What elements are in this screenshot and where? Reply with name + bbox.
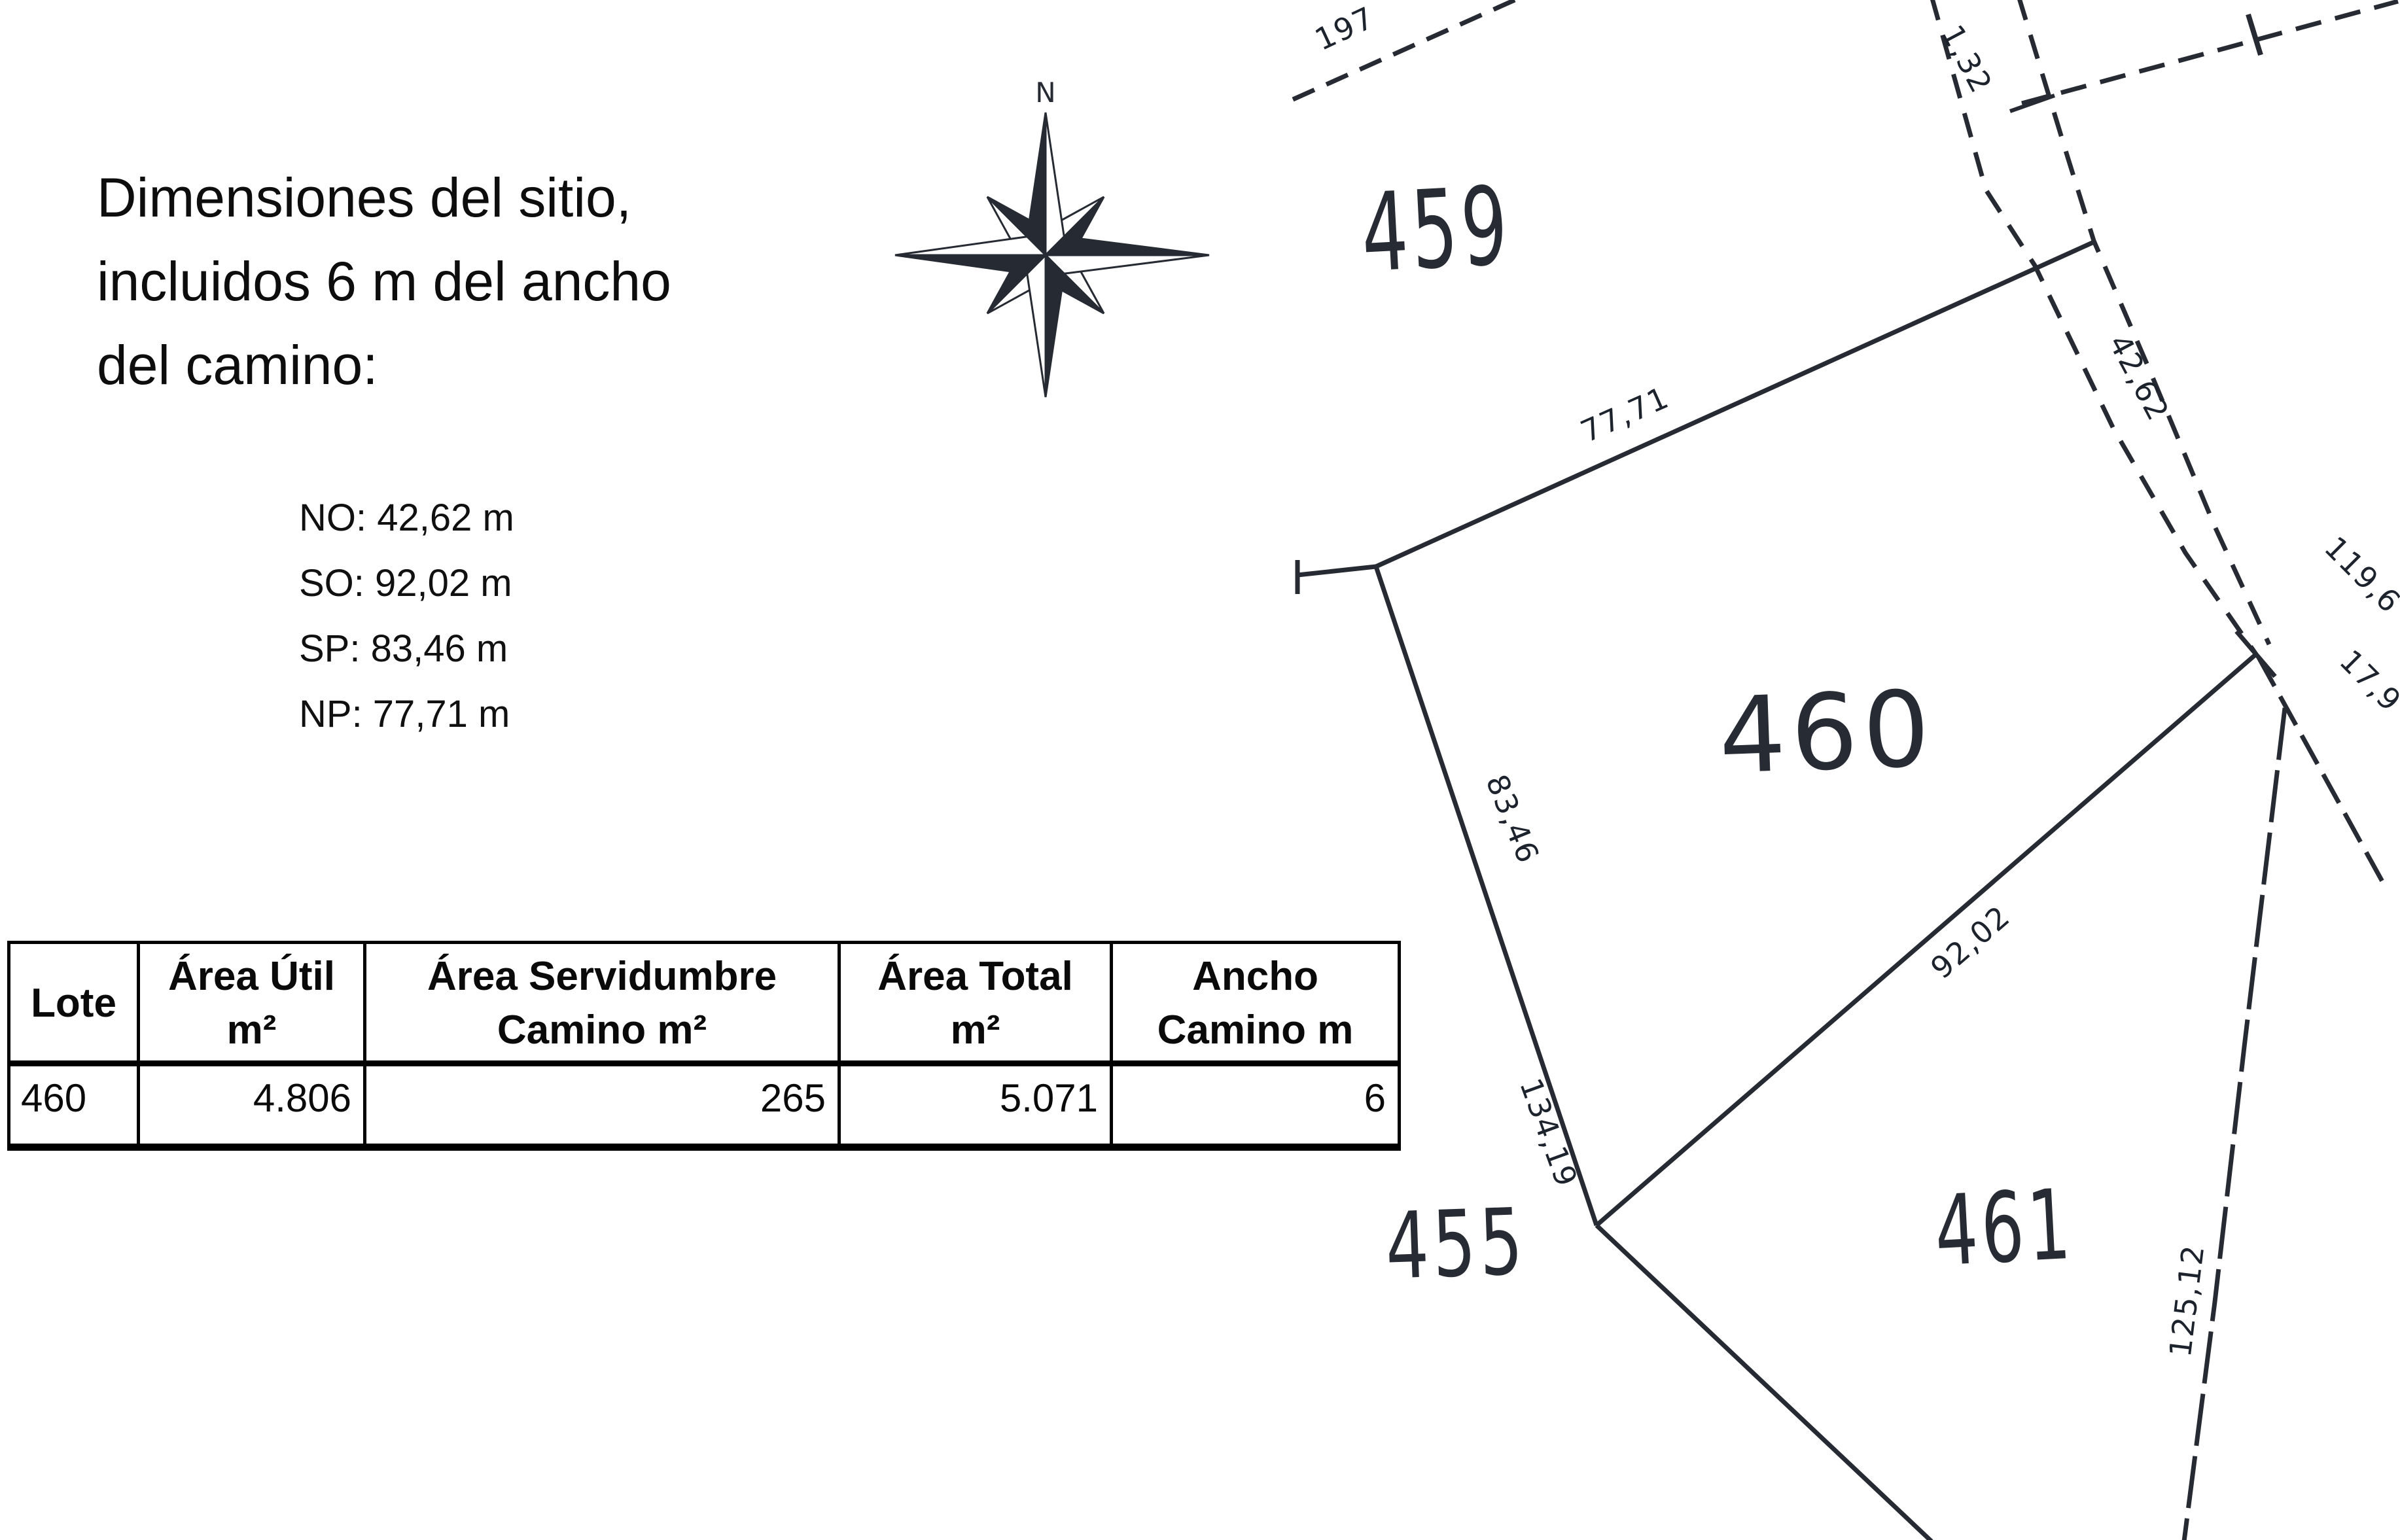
lot-number-461: 461	[1932, 1168, 2077, 1288]
dim-label-197: 197	[1309, 0, 1380, 58]
lot-number-455: 455	[1384, 1189, 1528, 1300]
road-left-dashed-line	[1932, 0, 2256, 654]
compass-arm-W	[895, 255, 1046, 273]
lot-number-460: 460	[1717, 667, 1937, 797]
dim-label-119-6: 119,6	[2318, 529, 2400, 620]
lot461-east-boundary-line	[2184, 708, 2285, 1540]
compass-rose: N	[895, 77, 1209, 397]
dim-label-1-32: 1,32	[1934, 19, 2000, 99]
road-right-dashed-line	[2019, 0, 2269, 644]
dim-label-92-02: 92,02	[1924, 898, 2017, 986]
compass-arm-S	[1046, 255, 1064, 397]
lot455-461-boundary-line	[1597, 1225, 1932, 1540]
dim-label-125-12: 125,12	[2162, 1242, 2212, 1359]
compass-arm-S	[1027, 255, 1046, 397]
east-corner-tick	[2236, 631, 2275, 676]
compass-arm-E	[1046, 255, 1209, 273]
compass-arm-N	[1027, 113, 1046, 255]
west-corner-stub-line	[1297, 567, 1376, 575]
document-page: Dimensiones del sitio, incluidos 6 m del…	[0, 0, 2400, 1540]
north-road-dashed-line	[2022, 1, 2398, 103]
dim-label-17-9: 17,9	[2333, 643, 2400, 719]
np-boundary-line	[1376, 242, 2094, 567]
lot-number-459: 459	[1358, 163, 1514, 296]
compass-arm-E	[1046, 237, 1209, 255]
compass-north-label: N	[1035, 77, 1055, 109]
compass-arm-N	[1046, 113, 1064, 255]
dim-label-134-19: 134,19	[1513, 1074, 1585, 1192]
dim-label-83-46: 83,46	[1479, 769, 1546, 869]
dim-label-42-62: 42,62	[2102, 328, 2176, 427]
north-road-tick	[2248, 14, 2261, 55]
cadastral-map-svg: 1971,3277,7142,62119,617,983,4692,02134,…	[0, 0, 2400, 1540]
compass-arm-W	[895, 237, 1046, 255]
